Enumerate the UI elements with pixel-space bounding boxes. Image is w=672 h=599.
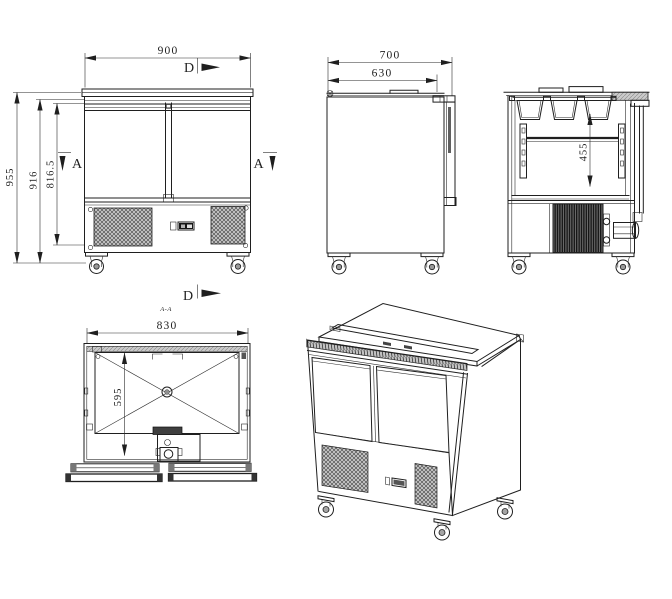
- technical-drawing-sheet: 900 955 916 816.5 D A: [0, 0, 672, 599]
- iso-caster-front: [434, 519, 450, 540]
- gn-pans: [510, 96, 617, 119]
- condenser-coil: [553, 204, 603, 253]
- dim-label-955: 955: [5, 168, 16, 187]
- caster-front-right: [227, 253, 249, 274]
- isometric-view: [306, 304, 523, 541]
- drawing-canvas: 900 955 916 816.5 D A: [0, 0, 672, 599]
- dim-label-816-5: 816.5: [46, 160, 57, 189]
- plan-view: D A-A 830: [66, 285, 257, 482]
- front-worktop: [82, 89, 253, 97]
- front-compressor-compartment: [85, 202, 251, 250]
- side-view: 700 630: [327, 50, 456, 275]
- shelf: [527, 138, 619, 142]
- section-arrow-down-icon: [270, 156, 276, 171]
- section-marker-d-bottom: D: [183, 285, 221, 305]
- section-arrow-right-icon: [202, 64, 221, 72]
- dim-label-916: 916: [29, 171, 40, 190]
- section-d-view: 455: [504, 87, 649, 274]
- section-marker-a-right: A: [253, 153, 277, 173]
- left-vent-grille: [94, 208, 152, 246]
- dim-label-630: 630: [372, 68, 393, 80]
- caster-section-left: [508, 253, 530, 274]
- section-arrow-down-icon: [60, 156, 66, 171]
- iso-thermostat-control: [386, 477, 407, 488]
- section-marker-a-left-label: A: [72, 157, 83, 172]
- dim-630: 630: [328, 68, 437, 93]
- drain-fitting: [153, 427, 200, 461]
- section-marker-a-right-label: A: [253, 157, 264, 172]
- section-marker-a-left: A: [58, 153, 83, 173]
- section-marker-d-top-label: D: [184, 61, 194, 76]
- section-label-a-a: A-A: [159, 306, 172, 313]
- iso-compressor-compartment: [316, 433, 453, 516]
- screw-icon: [88, 207, 92, 211]
- front-view: 900 955 916 816.5 D A: [5, 45, 277, 274]
- dim-816-5: 816.5: [46, 104, 85, 246]
- right-vent-grille: [211, 207, 245, 245]
- dim-455: 455: [579, 114, 591, 187]
- section-marker-d-top: D: [184, 58, 220, 76]
- caster-side-right: [421, 253, 443, 274]
- screw-icon: [243, 243, 247, 247]
- shelf-rails: [520, 124, 625, 178]
- iso-right-vent-grille: [415, 464, 437, 509]
- section-marker-d-bottom-label: D: [183, 289, 193, 304]
- dim-label-830: 830: [157, 320, 178, 332]
- dim-label-700: 700: [380, 50, 401, 62]
- plan-frame: [84, 344, 250, 463]
- iso-left-vent-grille: [322, 445, 368, 493]
- dim-label-455: 455: [579, 143, 590, 162]
- side-door-profile: [433, 96, 456, 206]
- iso-caster-left: [318, 496, 334, 517]
- plan-door-sections: [66, 463, 257, 481]
- thermostat-control: [171, 222, 195, 230]
- dim-900: 900: [85, 45, 251, 88]
- iso-right-door: [374, 366, 450, 453]
- caster-section-right: [612, 253, 634, 274]
- iso-caster-right: [497, 498, 513, 519]
- section-arrow-right-icon: [202, 290, 222, 298]
- caster-front-left: [86, 253, 108, 274]
- compressor-compartment: [508, 201, 639, 253]
- screw-icon: [88, 245, 92, 249]
- caster-side-left: [328, 253, 350, 274]
- door-mullion: [164, 103, 174, 202]
- dim-830: 830: [87, 320, 248, 344]
- valve-assembly: [603, 214, 609, 246]
- dim-label-900: 900: [158, 45, 179, 57]
- dim-label-595: 595: [113, 388, 124, 407]
- side-body: [327, 90, 444, 253]
- iso-left-door: [312, 358, 372, 442]
